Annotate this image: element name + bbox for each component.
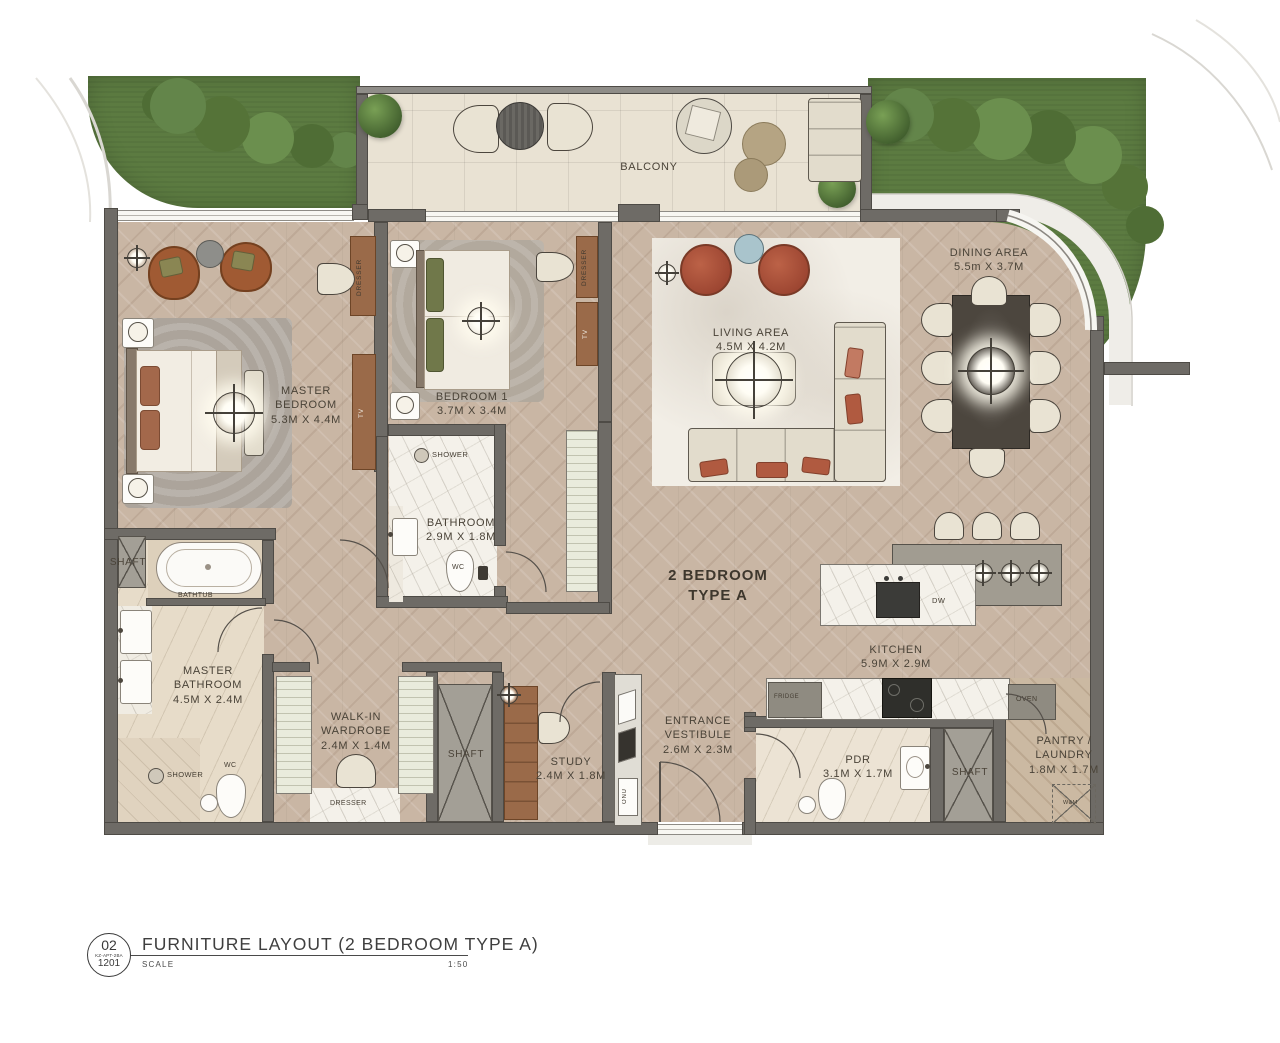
burner-icon	[910, 698, 924, 712]
pedestal-sink	[798, 796, 816, 814]
bar-stool	[972, 512, 1002, 540]
bed-pillow	[426, 258, 444, 312]
side-table	[196, 240, 224, 268]
room-dims: 2.9M X 1.8M	[411, 530, 511, 544]
balcony-sofa	[808, 98, 862, 182]
shower-head-icon	[414, 448, 429, 463]
label-study: STUDY 2.4M X 1.8M	[521, 755, 621, 784]
wall	[104, 822, 658, 835]
room-dims: 4.5M X 4.2M	[696, 340, 806, 354]
drain-icon	[205, 564, 211, 570]
dresser-label: DRESSER	[581, 242, 588, 292]
wall	[996, 209, 1020, 222]
faucet-icon	[118, 678, 123, 683]
wall-fixture	[478, 566, 488, 580]
dresser-label: DRESSER	[356, 246, 363, 308]
floor-plan-sheet: BALCONY	[0, 0, 1280, 1043]
label-living-area: LIVING AREA 4.5M X 4.2M	[696, 326, 806, 355]
wall	[402, 662, 502, 672]
room-dims: 2.4M X 1.8M	[521, 769, 621, 783]
label-pdr: PDR 3.1M X 1.7M	[808, 753, 908, 782]
sink	[120, 660, 152, 704]
faucet-icon	[884, 576, 889, 581]
room-name: BEDROOM 1	[417, 390, 527, 404]
dining-chair	[921, 351, 953, 385]
tv-label: TV	[582, 320, 589, 348]
bed-pillow	[140, 366, 160, 406]
room-name: KITCHEN	[846, 643, 946, 657]
ceiling-light-symbol	[467, 307, 495, 335]
room-dims: 1.8M X 1.7M	[1014, 763, 1114, 777]
sofa-pillow	[801, 456, 831, 475]
label-unit-type: 2 BEDROOM TYPE A	[648, 566, 788, 607]
wc-label: WC	[224, 762, 236, 769]
dining-chair	[921, 399, 953, 433]
label-bedroom-1: BEDROOM 1 3.7M X 3.4M	[417, 390, 527, 419]
table-lamp-icon	[396, 244, 414, 262]
burner-icon	[888, 684, 900, 696]
title-block-rule	[106, 955, 468, 956]
armchair	[680, 244, 732, 296]
sheet-number-bubble: 02 KZ-APT-2BA 1201	[87, 933, 131, 977]
sofa-pillow	[844, 393, 863, 425]
plant-icon	[866, 100, 910, 144]
label-kitchen: KITCHEN 5.9M X 2.9M	[846, 643, 946, 672]
room-name: PDR	[808, 753, 908, 767]
hall-closet	[566, 430, 598, 592]
label-master-bathroom: MASTER BATHROOM 4.5M X 2.4M	[158, 664, 258, 707]
ceiling-light-symbol	[213, 392, 255, 434]
sofa-pillow	[756, 462, 788, 478]
pendant-light-symbol	[973, 563, 993, 583]
bar-stool	[1010, 512, 1040, 540]
ceiling-light-symbol	[658, 264, 676, 282]
pendant-light-symbol	[1001, 563, 1021, 583]
chair-pillow	[231, 250, 256, 272]
wall	[598, 422, 612, 614]
wall	[860, 209, 1008, 222]
mirror-panel	[618, 689, 636, 725]
sheet-title: FURNITURE LAYOUT (2 BEDROOM TYPE A)	[142, 934, 539, 955]
room-dims: 2.4M X 1.4M	[306, 739, 406, 753]
shower-head-icon	[148, 768, 164, 784]
armchair	[758, 244, 810, 296]
bed-pillow	[140, 410, 160, 450]
dresser-label: DRESSER	[330, 800, 367, 807]
room-name: ENTRANCE VESTIBULE	[659, 714, 737, 743]
scale-value: 1:50	[448, 960, 468, 969]
balcony-railing	[356, 86, 872, 94]
faucet-icon	[898, 576, 903, 581]
dining-chair	[921, 303, 953, 337]
label-dining-area: DINING AREA 5.5m X 3.7M	[934, 246, 1044, 275]
room-name: MASTER BEDROOM	[269, 384, 344, 413]
side-table	[734, 234, 764, 264]
label-shaft: SHAFT	[438, 748, 494, 761]
wall	[618, 204, 660, 222]
balcony-round-table	[496, 102, 544, 150]
shower-label: SHOWER	[167, 770, 203, 779]
label-entrance-vestibule: ENTRANCE VESTIBULE 2.6M X 2.3M	[648, 714, 748, 757]
scale-label: SCALE	[142, 960, 174, 969]
room-name: PANTRY / LAUNDRY	[1032, 734, 1096, 763]
wall	[376, 436, 388, 608]
room-name: MASTER BATHROOM	[167, 664, 249, 693]
bar-stool	[934, 512, 964, 540]
balcony-pouf	[734, 158, 768, 192]
entrance-threshold	[648, 835, 752, 845]
faucet-icon	[118, 628, 123, 633]
label-walk-in-wardrobe: WALK-IN WARDROBE 2.4M X 1.4M	[306, 710, 406, 753]
room-dims: 2.6M X 2.3M	[648, 743, 748, 757]
oven-label: OVEN	[1016, 696, 1037, 703]
wall	[368, 209, 426, 222]
room-dims: 5.5m X 3.7M	[934, 260, 1044, 274]
label-shaft: SHAFT	[942, 766, 998, 779]
shower-label: SHOWER	[432, 450, 468, 459]
label-bathroom: BATHROOM 2.9M X 1.8M	[411, 516, 511, 545]
sheet-number: 02	[88, 937, 130, 953]
room-dims: 3.1M X 1.7M	[808, 767, 908, 781]
unit-number: 1201	[88, 958, 130, 969]
cooktop	[882, 678, 932, 718]
wall	[388, 424, 500, 436]
onu-box	[618, 778, 638, 816]
dishwasher-label: DW	[932, 596, 945, 605]
balcony-label: BALCONY	[600, 160, 698, 174]
washing-machine-label: W&M	[1063, 800, 1078, 806]
room-dims: 5.9M X 2.9M	[846, 657, 946, 671]
table-lamp-icon	[396, 396, 414, 414]
wall	[1104, 362, 1190, 375]
ceiling-light-symbol	[726, 352, 782, 408]
room-name: DINING AREA	[934, 246, 1044, 260]
wall	[262, 540, 274, 604]
road-arc	[1152, 34, 1272, 170]
bed-pillow	[426, 318, 444, 372]
ceiling-light-symbol	[967, 347, 1015, 395]
pendant-light-symbol	[1029, 563, 1049, 583]
wardrobe-pouf	[336, 754, 376, 788]
room-dims: 5.3M X 4.4M	[251, 413, 361, 427]
room-name: WALK-IN WARDROBE	[315, 710, 397, 739]
plant-icon	[358, 94, 402, 138]
bathtub-label: BATHTUB	[178, 592, 213, 599]
fridge-label: FRIDGE	[774, 694, 799, 700]
wc-label: WC	[452, 564, 464, 571]
faucet-icon	[925, 764, 930, 769]
label-pantry-laundry: PANTRY / LAUNDRY 1.8M X 1.7M	[1014, 734, 1114, 777]
wall	[744, 778, 756, 835]
room-dims: 4.5M X 2.4M	[158, 693, 258, 707]
balcony-floor	[360, 92, 868, 215]
label-master-bedroom: MASTER BEDROOM 5.3M X 4.4M	[251, 384, 361, 427]
ceiling-light-symbol	[500, 686, 518, 704]
wall	[262, 654, 274, 822]
sink	[120, 610, 152, 654]
wall	[146, 598, 266, 606]
wall	[374, 222, 388, 472]
sliding-door	[660, 211, 860, 222]
onu-label: ONU	[622, 782, 628, 810]
faucet-icon	[388, 532, 393, 537]
basin-icon	[906, 756, 924, 778]
dining-chair	[971, 276, 1007, 306]
entrance-opening	[658, 824, 742, 835]
room-dims: 3.7M X 3.4M	[417, 404, 527, 418]
room-name: STUDY	[521, 755, 621, 769]
wall	[104, 208, 118, 835]
window	[118, 210, 354, 221]
fridge	[768, 682, 822, 718]
sliding-door	[426, 211, 618, 222]
stool	[200, 794, 218, 812]
table-lamp-icon	[128, 322, 148, 342]
wall	[272, 662, 310, 672]
wall	[506, 602, 610, 614]
label-shaft: SHAFT	[104, 556, 152, 569]
room-name: BATHROOM	[411, 516, 511, 530]
table-lamp-icon	[128, 478, 148, 498]
balcony-lounge-chair	[453, 105, 499, 153]
wall	[742, 822, 1104, 835]
wall	[598, 222, 612, 422]
island-sink	[876, 582, 920, 618]
wall	[352, 204, 368, 220]
room-name: LIVING AREA	[696, 326, 806, 340]
ceiling-light-symbol	[127, 248, 147, 268]
